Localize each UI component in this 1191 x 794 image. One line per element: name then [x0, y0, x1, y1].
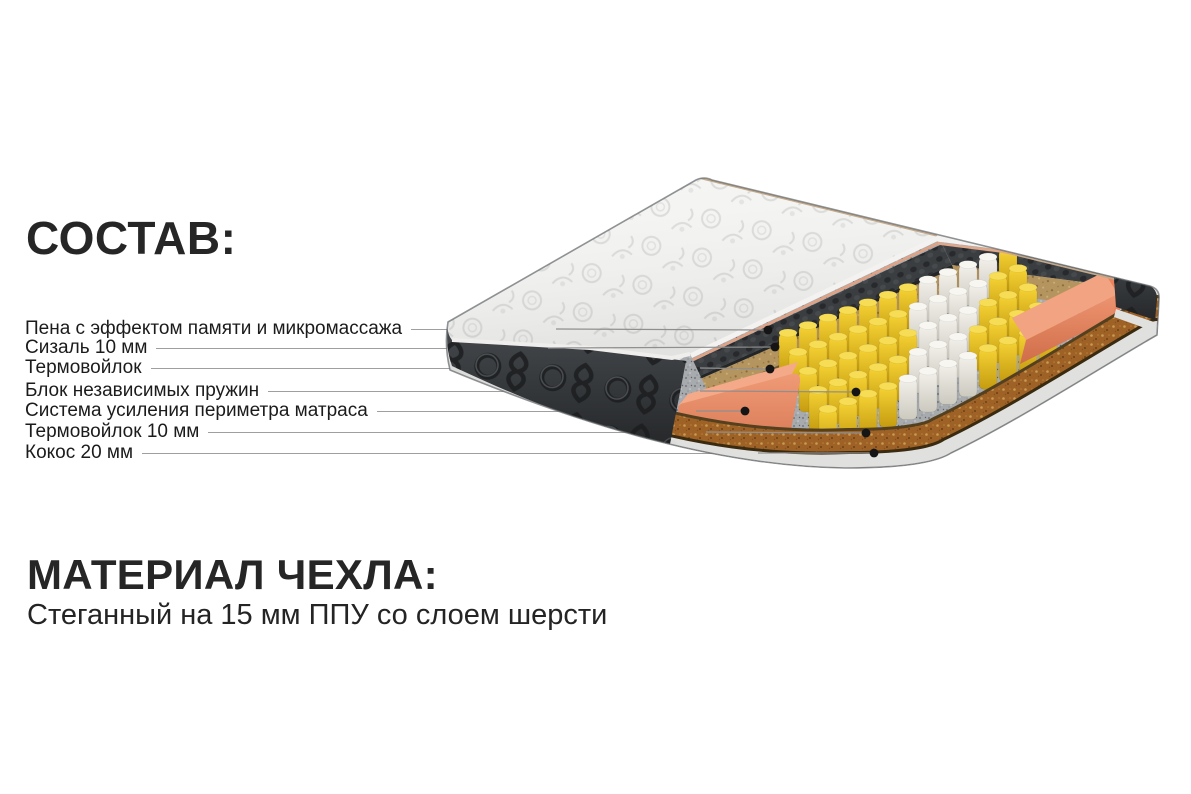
composition-title: СОСТАВ: — [26, 211, 236, 265]
layer-dot — [870, 449, 879, 458]
layer-dot — [862, 429, 871, 438]
cover-material-title: МАТЕРИАЛ ЧЕХЛА: — [27, 551, 438, 599]
layer-dot — [852, 388, 861, 397]
layer-dot — [766, 365, 775, 374]
layer-dot — [764, 326, 773, 335]
layer-dot — [771, 343, 780, 352]
layer-dot — [741, 407, 750, 416]
cover-material-description: Стеганный на 15 мм ППУ со слоем шерсти — [27, 599, 607, 632]
mattress-cutaway-illustration — [0, 0, 1191, 794]
